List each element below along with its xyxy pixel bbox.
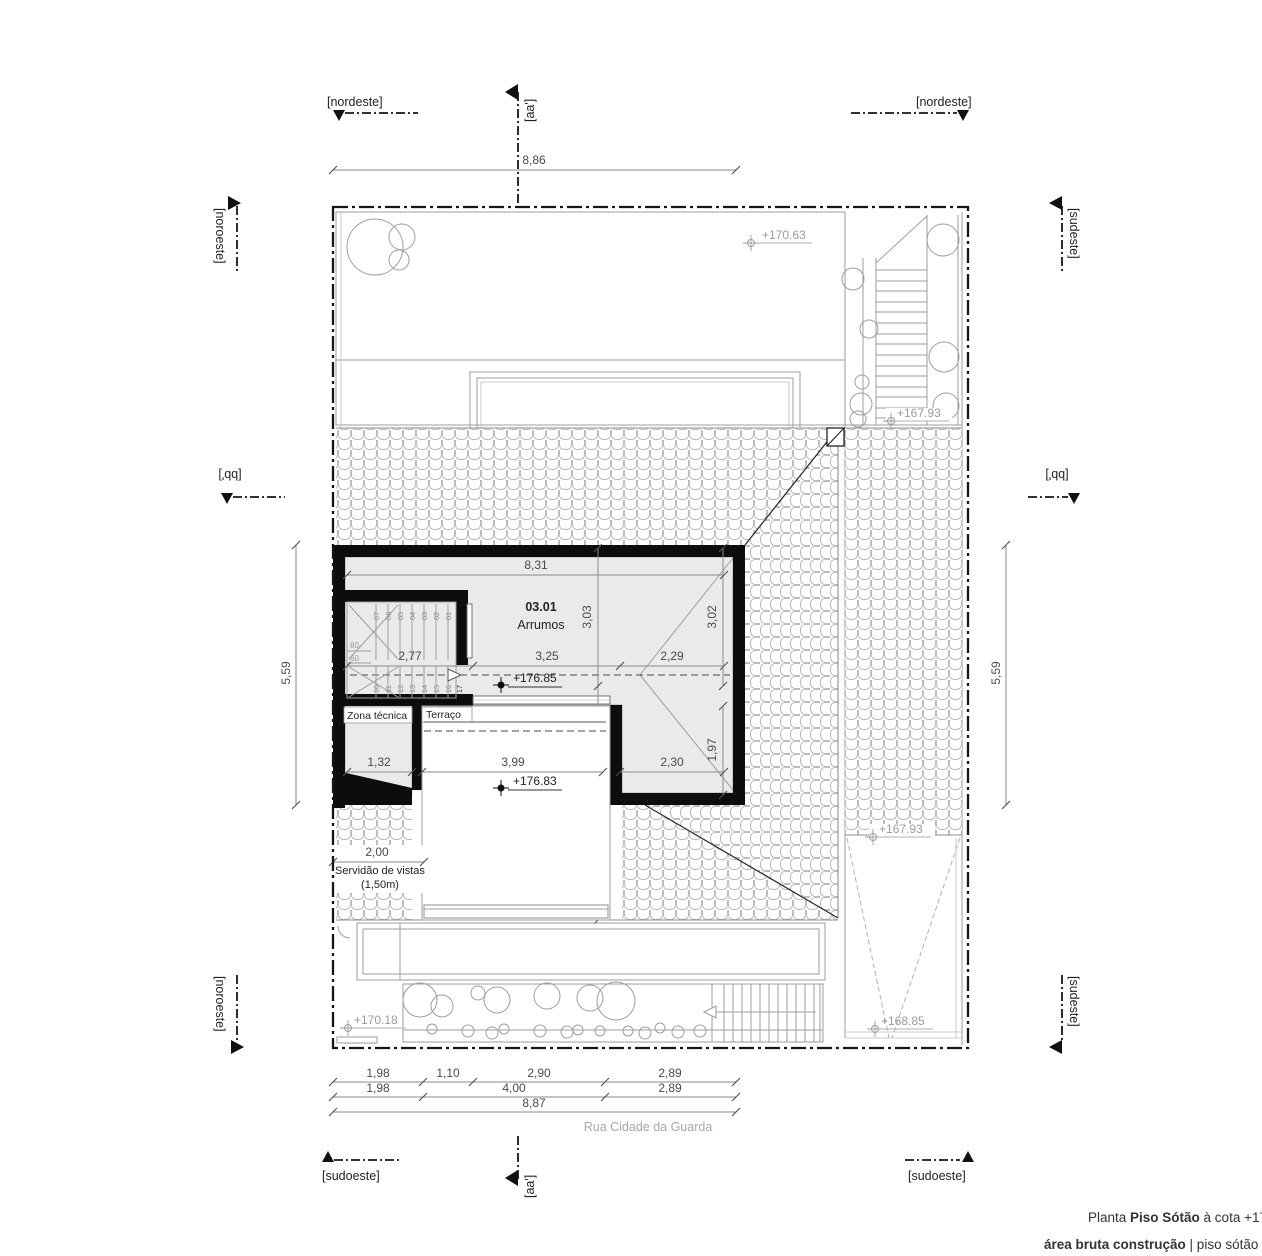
level-marker-16885: +168.85 — [867, 1014, 933, 1037]
dim-831: 8,31 — [524, 558, 548, 572]
exterior-stair-treads — [876, 270, 927, 418]
level-text: +168.85 — [881, 1014, 925, 1028]
dim-277: 2,77 — [398, 649, 422, 663]
dim-197: 1,97 — [705, 738, 719, 762]
level-text: +167.93 — [879, 822, 923, 836]
dim-559-right: 5,59 — [989, 661, 1003, 685]
level-text: +176.85 — [513, 671, 557, 685]
level-marker-16793-ramp: +167.93 — [865, 822, 935, 845]
servidao-label-line2: (1,50m) — [361, 879, 399, 891]
drawing-title: Planta Piso Sótão à cota +178 — [1088, 1210, 1262, 1225]
tread-05: 05 — [396, 612, 405, 620]
garden-stair — [704, 984, 820, 1042]
marker-sudoeste-left: [sudoeste] — [322, 1151, 400, 1183]
room-name: Arrumos — [517, 618, 564, 632]
chimney — [827, 428, 844, 446]
riser-label-80: 80 — [350, 641, 359, 650]
tread-07: 07 — [372, 612, 381, 620]
level-text: +176.83 — [513, 774, 557, 788]
marker-label: [sudoeste] — [322, 1169, 380, 1183]
drawing-subtitle: área bruta construção | piso sótão = 031 — [1044, 1237, 1262, 1252]
tread-04: 04 — [408, 612, 417, 620]
marker-aa-top: [aa'] — [505, 84, 537, 205]
roof-tiles-east-strip — [845, 428, 962, 835]
street-name: Rua Cidade da Guarda — [584, 1120, 713, 1134]
garden-south: +170.18 — [337, 923, 825, 1043]
dim-289a: 2,89 — [658, 1066, 682, 1080]
dim-887: 8,87 — [522, 1096, 546, 1110]
marker-label: [nordeste] — [327, 95, 383, 109]
tread-16: 16 — [444, 685, 453, 693]
subtitle-area-label: área bruta construção — [1044, 1237, 1186, 1252]
marker-label: [sudeste] — [1067, 208, 1081, 259]
tread-14: 14 — [420, 685, 429, 693]
plan-drawing: 07 06 05 04 03 02 01 10 11 12 13 14 15 1… — [0, 0, 1262, 1256]
title-elevation: à cota +178 — [1200, 1210, 1262, 1225]
dim-198b: 1,98 — [366, 1081, 390, 1095]
tread-06: 06 — [384, 612, 393, 620]
floor-plan-sheet: 07 06 05 04 03 02 01 10 11 12 13 14 15 1… — [0, 0, 1262, 1256]
marker-label: [aa'] — [523, 99, 537, 122]
dim-559-left: 5,59 — [279, 661, 293, 685]
marker-sudoeste-right: [sudoeste] — [905, 1151, 974, 1183]
dim-200: 2,00 — [365, 845, 389, 859]
stair-tread-numbers-upper: 07 06 05 04 03 02 01 — [372, 612, 453, 620]
room-number: 03.01 — [525, 600, 556, 614]
marker-label: [bb'] — [1045, 468, 1068, 482]
level-text: +170.18 — [354, 1013, 398, 1027]
marker-nordeste-right: [nordeste] — [851, 95, 972, 121]
subtitle-area-value: | piso sótão = 031 — [1186, 1237, 1262, 1252]
dim-302: 3,02 — [705, 605, 719, 629]
dim-325: 3,25 — [535, 649, 559, 663]
marker-label: [noroeste] — [213, 976, 227, 1032]
marker-label: [sudoeste] — [908, 1169, 966, 1183]
tread-12: 12 — [396, 685, 405, 693]
dim-229: 2,29 — [660, 649, 684, 663]
dim-110: 1,10 — [436, 1066, 460, 1080]
ramp-east: +167.93 +168.85 — [845, 822, 962, 1038]
level-marker-16793-stair: +167.93 — [883, 406, 952, 429]
tread-02: 02 — [432, 612, 441, 620]
terrace-balustrade — [424, 905, 608, 918]
marker-noroeste-bottom: [noroeste] — [213, 975, 244, 1054]
marker-bb-left: [bb'] — [218, 468, 285, 504]
rooflight-courtyard — [470, 372, 800, 428]
marker-sudeste-bottom: [sudeste] — [1049, 975, 1081, 1054]
marker-label: [nordeste] — [916, 95, 972, 109]
trees-north — [347, 219, 415, 275]
bottom-dimension-rows: 1,98 1,10 2,90 2,89 1,98 4,00 2,89 8,87 — [329, 1066, 740, 1116]
tread-15: 15 — [432, 685, 441, 693]
tread-01: 01 — [444, 612, 453, 620]
stair-door-leaf — [467, 604, 472, 658]
servidao-label-line1: Servidão de vistas — [335, 865, 425, 877]
riser-label-60: 60 — [350, 654, 359, 663]
title-prefix: Planta — [1088, 1210, 1130, 1225]
marker-aa-bottom: [aa'] — [505, 1136, 537, 1198]
level-marker-17063: +170.63 — [743, 228, 812, 251]
marker-label: [sudeste] — [1067, 976, 1081, 1027]
dim-400: 4,00 — [502, 1081, 526, 1095]
tread-03: 03 — [420, 612, 429, 620]
dim-399: 3,99 — [501, 755, 525, 769]
terrace-label: Terraço — [426, 709, 461, 721]
marker-bb-right: [bb'] — [1028, 468, 1080, 504]
level-text: +170.63 — [762, 228, 806, 242]
marker-sudeste-top: [sudeste] — [1049, 196, 1081, 272]
tread-13: 13 — [408, 685, 417, 693]
dim-290: 2,90 — [527, 1066, 551, 1080]
level-marker-17018: +170.18 — [340, 1013, 406, 1036]
marker-noroeste-top: [noroeste] — [213, 196, 241, 272]
marker-label: [bb'] — [218, 468, 241, 482]
dim-132: 1,32 — [367, 755, 391, 769]
tread-10: 10 — [372, 685, 381, 693]
level-text: +167.93 — [897, 406, 941, 420]
dim-289b: 2,89 — [658, 1081, 682, 1095]
servidao-de-vistas: 2,00 Servidão de vistas (1,50m) — [329, 845, 428, 893]
marker-label: [aa'] — [523, 1175, 537, 1198]
title-plan-name: Piso Sótão — [1130, 1210, 1200, 1225]
stair-direction-arrow — [704, 1006, 716, 1018]
dim-230: 2,30 — [660, 755, 684, 769]
zona-tecnica-label: Zona técnica — [347, 710, 407, 722]
tread-11: 11 — [384, 685, 393, 693]
marker-nordeste-left: [nordeste] — [327, 95, 418, 121]
dim-198a: 1,98 — [366, 1066, 390, 1080]
marker-label: [noroeste] — [213, 208, 227, 264]
dim-886: 8,86 — [522, 153, 546, 167]
tread-17: 17 — [455, 685, 464, 693]
dim-303: 3,03 — [580, 605, 594, 629]
